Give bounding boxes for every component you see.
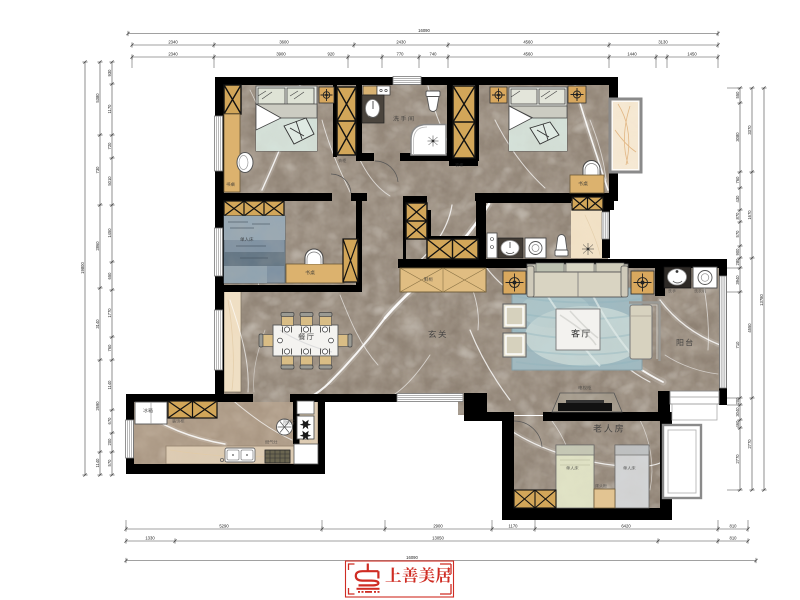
svg-text:1140: 1140	[107, 380, 112, 390]
svg-text:1670: 1670	[747, 210, 752, 220]
svg-text:5380: 5380	[95, 93, 100, 103]
svg-text:570: 570	[107, 459, 112, 467]
svg-text:570: 570	[735, 230, 740, 238]
svg-text:920: 920	[328, 52, 336, 57]
svg-text:3900: 3900	[276, 52, 286, 57]
svg-text:5010: 5010	[107, 176, 112, 186]
svg-text:2340: 2340	[168, 40, 178, 45]
svg-text:730: 730	[95, 166, 100, 174]
svg-text:550: 550	[735, 91, 740, 99]
svg-text:4550: 4550	[747, 323, 752, 333]
svg-text:2430: 2430	[396, 40, 406, 45]
svg-text:2690: 2690	[95, 401, 100, 411]
svg-text:3370: 3370	[747, 125, 752, 135]
svg-text:5290: 5290	[219, 524, 229, 529]
svg-text:1770: 1770	[107, 308, 112, 318]
svg-text:810: 810	[730, 536, 738, 541]
svg-text:16090: 16090	[418, 28, 430, 33]
svg-text:2860: 2860	[95, 241, 100, 251]
svg-text:19800: 19800	[80, 262, 85, 274]
svg-text:900: 900	[735, 248, 740, 256]
svg-text:4560: 4560	[523, 40, 533, 45]
svg-text:650: 650	[107, 272, 112, 280]
svg-text:870: 870	[735, 212, 740, 220]
svg-text:770: 770	[397, 52, 405, 57]
svg-text:200: 200	[107, 438, 112, 446]
svg-text:1170: 1170	[107, 104, 112, 114]
svg-text:4560: 4560	[523, 52, 533, 57]
svg-text:2770: 2770	[735, 454, 740, 464]
svg-text:2900: 2900	[433, 524, 443, 529]
svg-text:1330: 1330	[145, 536, 155, 541]
svg-text:1450: 1450	[107, 228, 112, 238]
svg-text:3040: 3040	[735, 407, 740, 417]
svg-text:670: 670	[107, 417, 112, 425]
svg-text:760: 760	[735, 176, 740, 184]
svg-text:430: 430	[735, 195, 740, 203]
svg-text:6420: 6420	[621, 524, 631, 529]
svg-text:13780: 13780	[759, 294, 764, 306]
svg-text:3130: 3130	[658, 40, 668, 45]
svg-text:3140: 3140	[95, 319, 100, 329]
svg-text:2770: 2770	[747, 439, 752, 449]
svg-text:3080: 3080	[735, 132, 740, 142]
svg-text:810: 810	[730, 524, 738, 529]
svg-text:1170: 1170	[508, 524, 518, 529]
svg-text:3600: 3600	[279, 40, 289, 45]
svg-text:2340: 2340	[168, 52, 178, 57]
svg-text:720: 720	[107, 142, 112, 150]
svg-text:760: 760	[107, 344, 112, 352]
svg-text:740: 740	[430, 52, 438, 57]
svg-text:16090: 16090	[406, 555, 418, 560]
svg-text:710: 710	[735, 341, 740, 349]
svg-text:930: 930	[107, 69, 112, 77]
svg-text:460: 460	[735, 420, 740, 428]
svg-text:1440: 1440	[627, 52, 637, 57]
svg-text:13050: 13050	[432, 536, 444, 541]
svg-text:1140: 1140	[95, 458, 100, 468]
svg-text:1450: 1450	[687, 52, 697, 57]
svg-text:280: 280	[735, 258, 740, 266]
svg-text:3940: 3940	[735, 275, 740, 285]
